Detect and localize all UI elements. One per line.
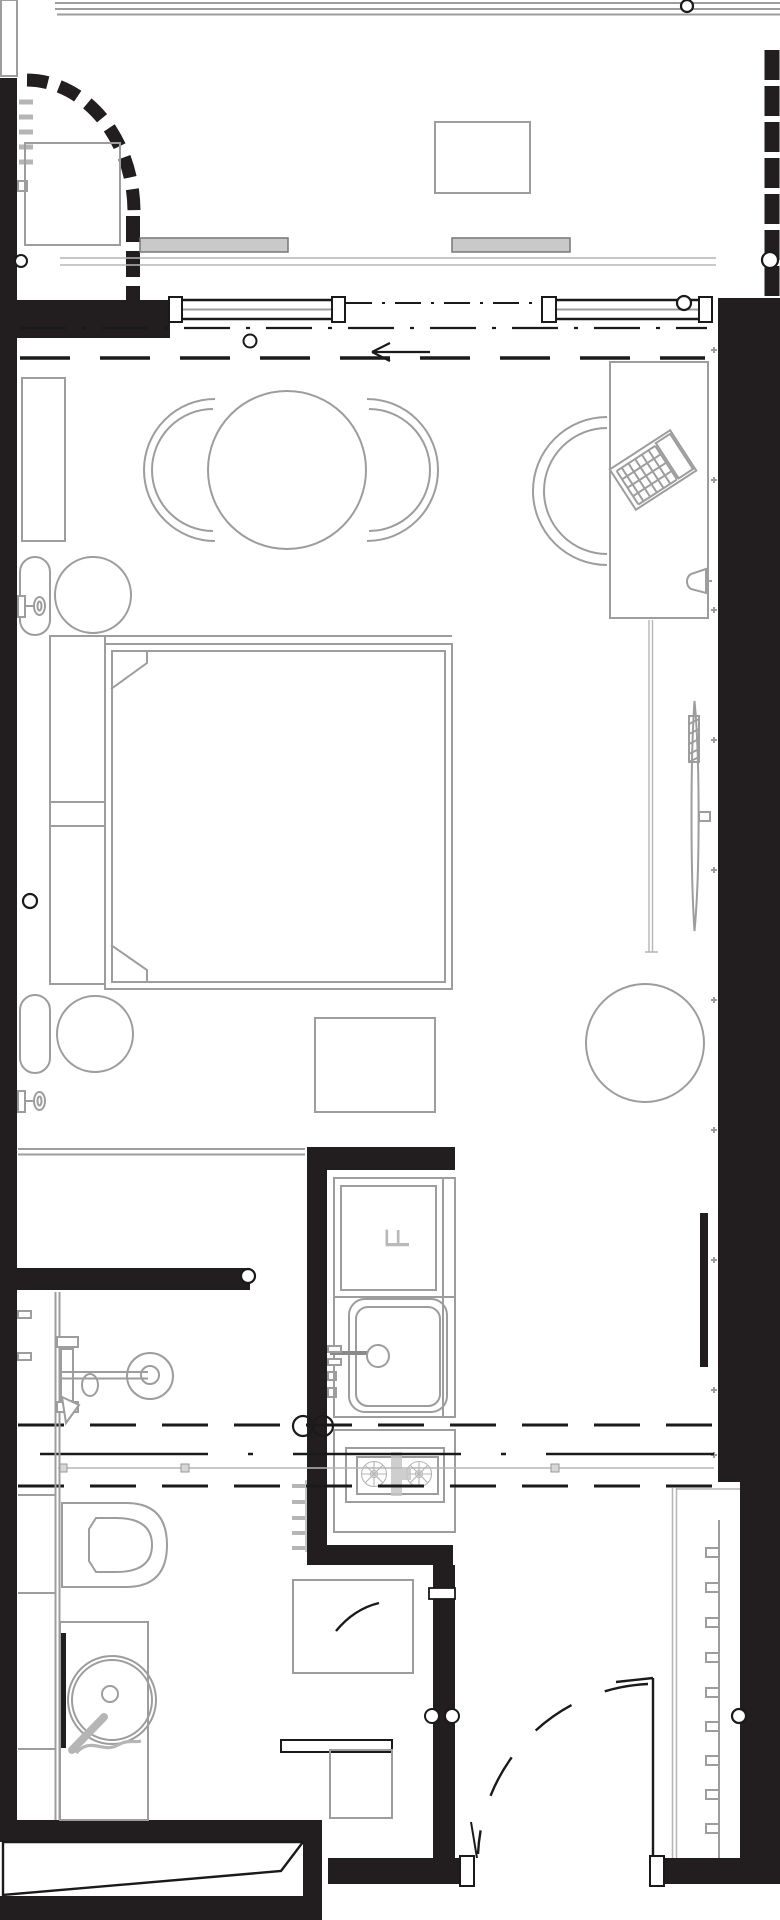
bedside-stool-bottom [57,996,133,1072]
wall-kitchen-top [307,1147,455,1170]
wall-bottom-left-upper [0,1820,322,1842]
mattress [112,651,445,982]
shower-hose [76,1741,141,1753]
door-jambs [429,1588,664,1886]
washbasin-drain [141,1366,159,1384]
entry-door-leaf [616,1678,653,1858]
bedside-wand-bottom [20,995,50,1073]
vanity-counter [56,1292,60,1820]
bathroom-door-swing [336,1603,379,1631]
bathroom-wall-circle [241,1269,255,1283]
planter-box [25,143,120,245]
shower-tray-outer [68,1656,156,1744]
wall-socket-circle [23,894,37,908]
pillow-folds [111,651,147,982]
balcony-table [435,122,530,193]
doormat-b [330,1750,392,1818]
wall-bathroom-top [0,1268,250,1290]
mixer-tap [57,1337,148,1423]
wardrobe [22,378,65,541]
bedside-console [50,636,105,984]
sliding-door-leaf-right [452,238,570,252]
wall-bottom-right-band [662,1858,780,1884]
fridge-label: F [379,1228,417,1249]
pan-symbol [391,1452,411,1496]
curtain-track [645,620,658,952]
doormat-a [293,1580,413,1673]
closet-shelf-line [18,1149,305,1155]
shower-drain [102,1686,118,1702]
vanity-shelves [18,1495,56,1749]
wall-left [0,78,17,1822]
desk-chair [533,417,607,565]
section-lines [18,1425,714,1486]
balcony-left-stub [1,0,17,76]
balcony [1,0,780,302]
living-area [22,347,717,1458]
shower-tray-inner [72,1660,152,1740]
sleeping-area [18,557,452,1283]
towel-rail-rungs [292,1486,305,1548]
wall-right-lower [740,1482,780,1859]
bedside-stool-top [55,557,131,633]
door-track-lines [60,258,716,265]
dining-chairs [144,399,438,541]
cooktop-burner-left [362,1462,387,1487]
facade [20,238,716,361]
vanity-ticks [18,1311,31,1360]
console-drawers [50,802,105,826]
mullion-tick-marks [711,347,717,1458]
wall-entry-left-band [328,1858,463,1884]
bedside-sconce-bottom [18,1091,45,1112]
wall-bottom-left-lower [0,1896,322,1920]
door-jamb-stub [471,1822,477,1858]
dining-table [208,391,366,549]
closet-knob-circle [732,1709,746,1723]
wall-balcony-lintel [0,300,170,338]
wall-tv [692,701,699,931]
lounge-chair [586,984,704,1102]
wall-kitchen-jog [307,1545,453,1565]
wall-right-upper [718,298,780,1482]
coat-closet-edge [673,1488,741,1858]
bathroom [18,1292,173,1820]
wall-bottom-left-connector [303,1842,322,1896]
kitchen-sink [349,1299,447,1412]
railing-post-circle-top [681,0,693,12]
double-bed [105,644,452,989]
entry-door-swing-arc [478,1684,648,1854]
floor-plan-canvas: F [0,0,780,1920]
coat-rack-hooks [706,1548,719,1833]
walls [0,78,780,1920]
radiator [700,1213,708,1367]
wall-circle-left [15,255,27,267]
sliding-door-leaf-left [140,238,288,252]
railing-post-circle-right [762,252,778,268]
privacy-screen-arc [27,80,134,212]
kitchen-faucet [328,1345,389,1367]
bedside-sconce-top [18,596,45,617]
laptop [610,430,697,509]
threshold-ramp [3,1842,303,1895]
wall-kitchen-left [307,1170,327,1565]
window-post-circle [677,296,691,310]
floor-socket-circle [244,335,257,348]
balcony-railing-top [55,3,780,15]
floor-plan-page: F [0,0,780,1920]
washbasin [127,1353,173,1399]
foot-bench [315,1018,435,1112]
